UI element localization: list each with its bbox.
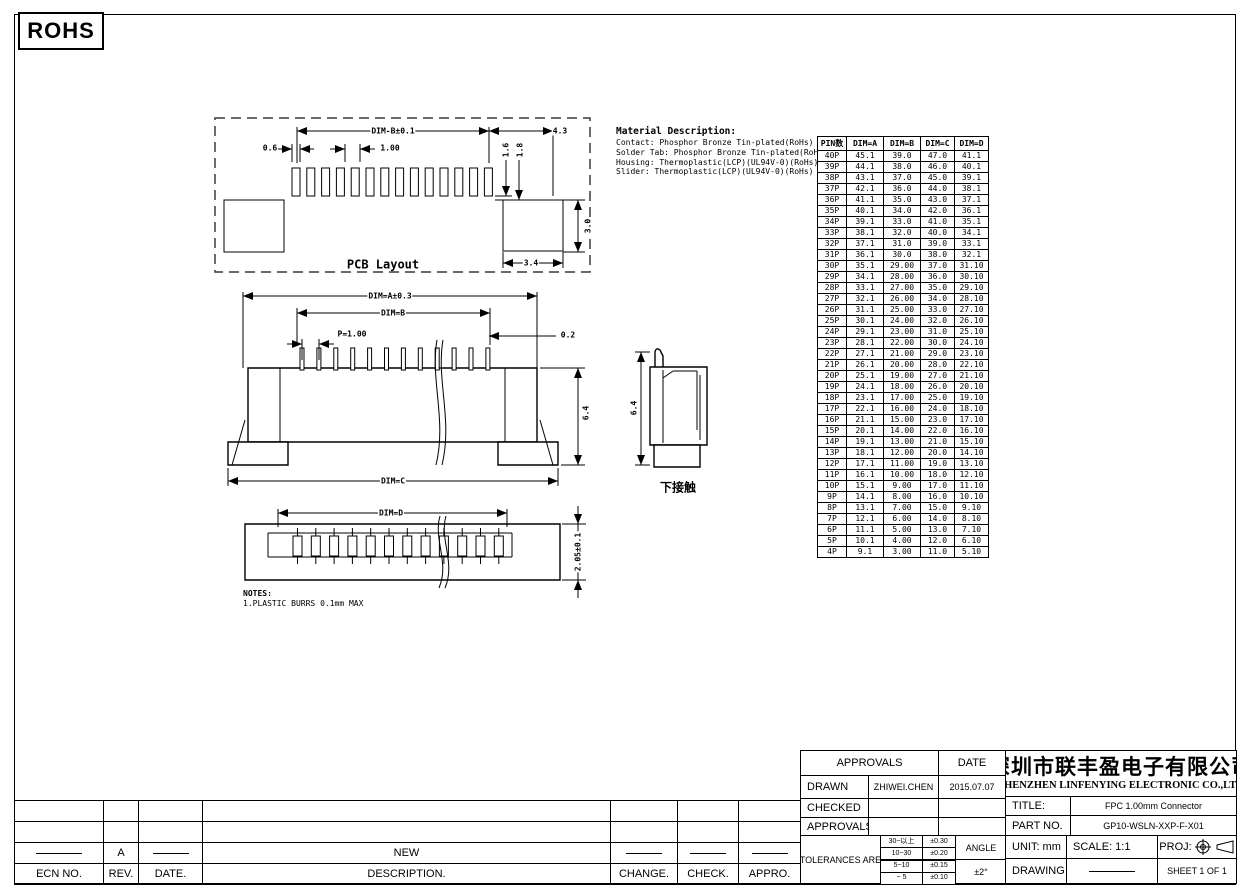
- dim-table-cell: 15P: [818, 426, 847, 437]
- dim-table-header: DIM=D: [955, 137, 989, 151]
- dim-table-cell: 19.1: [847, 437, 884, 448]
- drawing-no-value: [1066, 858, 1158, 884]
- pad: [452, 348, 456, 370]
- dim-table-cell: 34.0: [921, 294, 955, 305]
- dim-table-cell: 40P: [818, 151, 847, 162]
- dim-table-cell: 15.10: [955, 437, 989, 448]
- pad: [458, 536, 467, 556]
- approvals-label: APPROVALS: [800, 817, 869, 836]
- dim-table-cell: 27.0: [921, 371, 955, 382]
- tolerances-label: TOLERANCES ARE: [800, 835, 881, 884]
- dim-table-cell: 25P: [818, 316, 847, 327]
- dim-table-row: 11P16.110.0018.012.10: [818, 470, 989, 481]
- dim-table-cell: 12.10: [955, 470, 989, 481]
- dim-table-cell: 34P: [818, 217, 847, 228]
- dim-table-cell: 19.10: [955, 393, 989, 404]
- dim-table-cell: 27P: [818, 294, 847, 305]
- dim-table-cell: 11.10: [955, 481, 989, 492]
- dim-table-cell: 30.1: [847, 316, 884, 327]
- dim-table-body: 40P45.139.047.041.139P44.138.046.040.138…: [818, 151, 989, 558]
- dim-table-cell: 25.10: [955, 327, 989, 338]
- dim-table-cell: 42.1: [847, 184, 884, 195]
- dim-table-cell: 21.0: [921, 437, 955, 448]
- dim-table-cell: 24P: [818, 327, 847, 338]
- revision-empty-cell: [738, 821, 801, 843]
- dim-table-cell: 30.10: [955, 272, 989, 283]
- dim-table-row: 17P22.116.0024.018.10: [818, 404, 989, 415]
- notes-lines: 1.PLASTIC BURRS 0.1mm MAX: [243, 599, 363, 609]
- dim-table-row: 25P30.124.0032.026.10: [818, 316, 989, 327]
- dim-table-cell: 26.1: [847, 360, 884, 371]
- dim-table-cell: 16.1: [847, 470, 884, 481]
- dim-table-cell: 12.1: [847, 514, 884, 525]
- pcb-dim-16-label: 1.6: [502, 142, 511, 158]
- dim-table-cell: 21.1: [847, 415, 884, 426]
- dim-table-cell: 17.0: [921, 481, 955, 492]
- dim-table-cell: 12.0: [921, 536, 955, 547]
- pad: [494, 536, 503, 556]
- dim-table: PIN数 DIM=A DIM=B DIM=C DIM=D 40P45.139.0…: [817, 136, 989, 558]
- dim-table-cell: 23.1: [847, 393, 884, 404]
- dim-table-cell: 14.0: [921, 514, 955, 525]
- dim-table-cell: 6P: [818, 525, 847, 536]
- dim-table-cell: 8P: [818, 503, 847, 514]
- dim-table-cell: 21.10: [955, 371, 989, 382]
- dim-table-row: 35P40.134.042.036.1: [818, 206, 989, 217]
- dim-table-cell: 22.00: [884, 338, 921, 349]
- drawing-sheet: ROHS: [0, 0, 1249, 889]
- drawing-no-label: DRAWING NO.: [1005, 858, 1067, 884]
- dim-table-row: 26P31.125.0033.027.10: [818, 305, 989, 316]
- dim-table-cell: 32P: [818, 239, 847, 250]
- pcb-dim-30-label: 3.0: [584, 218, 593, 234]
- revision-empty-cell: [202, 821, 611, 843]
- dim-table-cell: 37.0: [884, 173, 921, 184]
- dim-table-cell: 20.00: [884, 360, 921, 371]
- dim-table-cell: 27.00: [884, 283, 921, 294]
- dim-table-cell: 38.0: [921, 250, 955, 261]
- tolerance-cell: 10~30: [880, 847, 923, 860]
- dim-table-cell: 31.0: [884, 239, 921, 250]
- dim-table-cell: 34.1: [847, 272, 884, 283]
- pcb-dim-43-label: 4.3: [552, 127, 568, 136]
- dim-table-cell: 18P: [818, 393, 847, 404]
- dim-table-cell: 18.10: [955, 404, 989, 415]
- text-line: Contact: Phosphor Bronze Tin-plated(RoHs…: [616, 138, 826, 148]
- revision-rev-value: A: [103, 842, 139, 864]
- front-dim-a-label: DIM=A±0.3: [367, 292, 412, 301]
- dim-table-cell: 9P: [818, 492, 847, 503]
- dim-table-cell: 29.1: [847, 327, 884, 338]
- drawn-label: DRAWN: [800, 775, 869, 799]
- dim-table-row: 14P19.113.0021.015.10: [818, 437, 989, 448]
- dim-table-row: 20P25.119.0027.021.10: [818, 371, 989, 382]
- dim-table-cell: 17.1: [847, 459, 884, 470]
- dim-table-cell: 23.10: [955, 349, 989, 360]
- dim-table-cell: 4P: [818, 547, 847, 558]
- projection-symbol-icon: [1195, 839, 1235, 855]
- dim-table-cell: 15.00: [884, 415, 921, 426]
- pad: [293, 536, 302, 556]
- revision-change-dash: [610, 842, 678, 864]
- front-dim-64-label: 6.4: [582, 405, 591, 421]
- dim-table-cell: 34.1: [955, 228, 989, 239]
- company-cell: 深圳市联丰盈电子有限公司 SHENZHEN LINFENYING ELECTRO…: [1005, 750, 1237, 797]
- pcb-right-pad: [503, 200, 563, 251]
- dim-table-cell: 23.00: [884, 327, 921, 338]
- revision-date-dash: [138, 842, 203, 864]
- dim-table-cell: 17.00: [884, 393, 921, 404]
- dim-table-cell: 11.1: [847, 525, 884, 536]
- dim-table-cell: 16.00: [884, 404, 921, 415]
- dim-table-cell: 29P: [818, 272, 847, 283]
- dim-table-cell: 12P: [818, 459, 847, 470]
- dim-table-row: 4P9.13.0011.05.10: [818, 547, 989, 558]
- dim-table-row: 27P32.126.0034.028.10: [818, 294, 989, 305]
- pcb-dim-34-label: 3.4: [523, 259, 539, 268]
- dim-table-cell: 42.0: [921, 206, 955, 217]
- dim-table-cell: 14.1: [847, 492, 884, 503]
- dim-table-cell: 35.0: [921, 283, 955, 294]
- dim-table-cell: 41.1: [955, 151, 989, 162]
- dim-table-row: 30P35.129.0037.031.10: [818, 261, 989, 272]
- pad: [418, 348, 422, 370]
- pcb-dim-100-label: 1.00: [379, 144, 400, 153]
- pad: [311, 536, 320, 556]
- dim-table-cell: 35.0: [884, 195, 921, 206]
- pad: [385, 348, 389, 370]
- dim-table-cell: 20.0: [921, 448, 955, 459]
- dim-table-row: 7P12.16.0014.08.10: [818, 514, 989, 525]
- pad: [403, 536, 412, 556]
- pad: [425, 168, 433, 196]
- dim-table-cell: 30.0: [884, 250, 921, 261]
- pad: [440, 168, 448, 196]
- revision-header-check: CHECK.: [677, 863, 739, 884]
- dim-table-cell: 38.0: [884, 162, 921, 173]
- dim-table-row: 6P11.15.0013.07.10: [818, 525, 989, 536]
- dim-table-cell: 29.10: [955, 283, 989, 294]
- dim-table-cell: 39.0: [884, 151, 921, 162]
- revision-empty-cell: [138, 800, 203, 822]
- approvals-date: [938, 817, 1006, 836]
- dim-table-cell: 39.1: [955, 173, 989, 184]
- pcb-view-title: PCB Layout: [347, 259, 419, 272]
- dim-table-row: 23P28.122.0030.024.10: [818, 338, 989, 349]
- pad: [385, 536, 394, 556]
- dim-table-row: 32P37.131.039.033.1: [818, 239, 989, 250]
- dim-table-cell: 30P: [818, 261, 847, 272]
- revision-empty-cell: [610, 800, 678, 822]
- dim-table-cell: 13.0: [921, 525, 955, 536]
- dim-table-row: 19P24.118.0026.020.10: [818, 382, 989, 393]
- checked-value: [868, 798, 939, 818]
- dim-table-header: DIM=C: [921, 137, 955, 151]
- dim-table-cell: 28P: [818, 283, 847, 294]
- dim-table-cell: 25.00: [884, 305, 921, 316]
- pad: [455, 168, 463, 196]
- dim-table-cell: 33P: [818, 228, 847, 239]
- dim-table-cell: 22.0: [921, 426, 955, 437]
- revision-check-dash: [677, 842, 739, 864]
- dim-table-cell: 25.1: [847, 371, 884, 382]
- dim-table-cell: 9.1: [847, 547, 884, 558]
- dim-table-cell: 26P: [818, 305, 847, 316]
- dim-table-row: 12P17.111.0019.013.10: [818, 459, 989, 470]
- dim-table-row: 37P42.136.044.038.1: [818, 184, 989, 195]
- dim-table-cell: 36.0: [884, 184, 921, 195]
- tolerance-cell: 5~10: [880, 860, 923, 873]
- scale-label: SCALE: 1:1: [1066, 835, 1158, 859]
- dim-table-header: DIM=A: [847, 137, 884, 151]
- dim-table-cell: 39P: [818, 162, 847, 173]
- dim-table-cell: 24.00: [884, 316, 921, 327]
- pad: [381, 168, 389, 196]
- material-title: Material Description:: [616, 126, 826, 138]
- dim-table-cell: 18.1: [847, 448, 884, 459]
- dim-table-cell: 41.1: [847, 195, 884, 206]
- dim-table-row: 39P44.138.046.040.1: [818, 162, 989, 173]
- tolerance-cell: ±0.20: [922, 847, 956, 860]
- dim-table-cell: 15.0: [921, 503, 955, 514]
- dim-table-cell: 13.00: [884, 437, 921, 448]
- dim-table-cell: 37.1: [847, 239, 884, 250]
- pad: [368, 348, 372, 370]
- dim-table-cell: 33.1: [955, 239, 989, 250]
- tolerance-cell: ~ 5: [880, 872, 923, 885]
- pad: [322, 168, 330, 196]
- dim-table-row: 22P27.121.0029.023.10: [818, 349, 989, 360]
- pad: [366, 168, 374, 196]
- dim-table-cell: 10.00: [884, 470, 921, 481]
- revision-empty-cell: [103, 821, 139, 843]
- dim-table-row: 9P14.18.0016.010.10: [818, 492, 989, 503]
- angle-value: ±2°: [955, 859, 1007, 884]
- dim-table-cell: 39.0: [921, 239, 955, 250]
- front-pins: [300, 348, 490, 370]
- dim-table-cell: 35P: [818, 206, 847, 217]
- revision-ecn-dash: [14, 842, 104, 864]
- pad: [401, 348, 405, 370]
- dim-table-cell: 28.1: [847, 338, 884, 349]
- dim-table-cell: 11P: [818, 470, 847, 481]
- dim-table-cell: 16.0: [921, 492, 955, 503]
- dim-table-row: 31P36.130.038.032.1: [818, 250, 989, 261]
- dim-table-cell: 45.0: [921, 173, 955, 184]
- dim-table-cell: 32.1: [955, 250, 989, 261]
- pad: [486, 348, 490, 370]
- revision-header-change: CHANGE.: [610, 863, 678, 884]
- dim-table-cell: 5P: [818, 536, 847, 547]
- dim-table-row: 21P26.120.0028.022.10: [818, 360, 989, 371]
- dim-table-cell: 40.0: [921, 228, 955, 239]
- dim-table-cell: 6.00: [884, 514, 921, 525]
- dim-table-header-row: PIN数 DIM=A DIM=B DIM=C DIM=D: [818, 137, 989, 151]
- dim-table-cell: 25.0: [921, 393, 955, 404]
- dim-table-cell: 24.10: [955, 338, 989, 349]
- dim-table-cell: 47.0: [921, 151, 955, 162]
- dim-table-cell: 13P: [818, 448, 847, 459]
- dim-table-cell: 10P: [818, 481, 847, 492]
- dim-table-cell: 11.0: [921, 547, 955, 558]
- dim-table-cell: 44.0: [921, 184, 955, 195]
- pad: [484, 168, 492, 196]
- dim-table-cell: 20P: [818, 371, 847, 382]
- pad: [396, 168, 404, 196]
- pcb-layout-view: [215, 118, 590, 272]
- pcb-left-pad: [224, 200, 284, 252]
- dim-table-cell: 26.0: [921, 382, 955, 393]
- dim-table-cell: 22.10: [955, 360, 989, 371]
- dim-table-cell: 7.00: [884, 503, 921, 514]
- material-lines: Contact: Phosphor Bronze Tin-plated(RoHs…: [616, 138, 826, 177]
- tolerance-cell: 30~以上: [880, 835, 923, 848]
- dim-table-cell: 14.00: [884, 426, 921, 437]
- approvals-header: APPROVALS: [800, 750, 939, 776]
- dim-table-cell: 33.1: [847, 283, 884, 294]
- dim-table-row: 8P13.17.0015.09.10: [818, 503, 989, 514]
- dim-table-cell: 37.1: [955, 195, 989, 206]
- dim-table-cell: 37P: [818, 184, 847, 195]
- dim-table-cell: 14.10: [955, 448, 989, 459]
- dim-table-row: 29P34.128.0036.030.10: [818, 272, 989, 283]
- dim-table-row: 34P39.133.041.035.1: [818, 217, 989, 228]
- revision-empty-cell: [677, 800, 739, 822]
- dim-table-cell: 8.10: [955, 514, 989, 525]
- dim-table-cell: 35.1: [847, 261, 884, 272]
- front-view: [228, 292, 585, 486]
- dim-table-cell: 44.1: [847, 162, 884, 173]
- pad: [470, 168, 478, 196]
- dim-table-cell: 31.10: [955, 261, 989, 272]
- company-name-en: SHENZHEN LINFENYING ELECTRONIC CO.,LTD: [1005, 779, 1237, 792]
- title-value: FPC 1.00mm Connector: [1070, 796, 1237, 816]
- dim-table-cell: 36.0: [921, 272, 955, 283]
- pad: [421, 536, 430, 556]
- unit-label: UNIT: mm: [1005, 835, 1067, 859]
- dim-table-cell: 31P: [818, 250, 847, 261]
- revision-header-appro: APPRO.: [738, 863, 801, 884]
- dim-table-row: 18P23.117.0025.019.10: [818, 393, 989, 404]
- pcb-dim-b-label: DIM-B±0.1: [370, 127, 415, 136]
- dim-table-cell: 39.1: [847, 217, 884, 228]
- tolerance-cell: ±0.10: [922, 872, 956, 885]
- dim-table-cell: 16P: [818, 415, 847, 426]
- notes-block: NOTES: 1.PLASTIC BURRS 0.1mm MAX: [243, 589, 363, 609]
- dim-table-cell: 5.00: [884, 525, 921, 536]
- dim-table-row: 13P18.112.0020.014.10: [818, 448, 989, 459]
- pcb-dim-06-label: 0.6: [262, 144, 278, 153]
- dim-table-cell: 16.10: [955, 426, 989, 437]
- dim-table-cell: 20.1: [847, 426, 884, 437]
- part-no-value: GP10-WSLN-XXP-F-X01: [1070, 815, 1237, 836]
- text-line: Solder Tab: Phosphor Bronze Tin-plated(R…: [616, 148, 826, 158]
- pad: [469, 348, 473, 370]
- drawn-date: 2015.07.07: [938, 775, 1006, 799]
- dim-table-header: DIM=B: [884, 137, 921, 151]
- dim-table-cell: 40.1: [847, 206, 884, 217]
- dim-table-cell: 4.00: [884, 536, 921, 547]
- dim-table-cell: 26.10: [955, 316, 989, 327]
- pad: [330, 536, 339, 556]
- material-description: Material Description: Contact: Phosphor …: [616, 126, 826, 177]
- dim-table-cell: 10.1: [847, 536, 884, 547]
- dim-table-cell: 45.1: [847, 151, 884, 162]
- dim-table-cell: 33.0: [921, 305, 955, 316]
- dim-table-cell: 19.0: [921, 459, 955, 470]
- dim-table-cell: 29.00: [884, 261, 921, 272]
- angle-label: ANGLE: [955, 835, 1007, 860]
- dim-table-cell: 7.10: [955, 525, 989, 536]
- revision-empty-cell: [14, 800, 104, 822]
- dim-table-cell: 23P: [818, 338, 847, 349]
- dim-table-cell: 19.00: [884, 371, 921, 382]
- revision-header-ecn: ECN NO.: [14, 863, 104, 884]
- pad: [307, 168, 315, 196]
- pad: [334, 348, 338, 370]
- dim-table-cell: 37.0: [921, 261, 955, 272]
- dim-table-cell: 18.00: [884, 382, 921, 393]
- dim-table-cell: 18.0: [921, 470, 955, 481]
- proj-cell: PROJ:: [1157, 835, 1237, 859]
- dim-table-cell: 11.00: [884, 459, 921, 470]
- dim-table-cell: 38.1: [847, 228, 884, 239]
- dim-table-cell: 27.10: [955, 305, 989, 316]
- dim-table-cell: 19P: [818, 382, 847, 393]
- dim-table-row: 38P43.137.045.039.1: [818, 173, 989, 184]
- dim-table-cell: 35.1: [955, 217, 989, 228]
- dim-table-cell: 38.1: [955, 184, 989, 195]
- company-name-cn: 深圳市联丰盈电子有限公司: [1005, 755, 1237, 779]
- revision-description-value: NEW: [202, 842, 611, 864]
- revision-empty-cell: [677, 821, 739, 843]
- date-header: DATE: [938, 750, 1006, 776]
- dim-table-cell: 13.10: [955, 459, 989, 470]
- front-dim-b-label: DIM=B: [380, 309, 406, 318]
- dim-table-cell: 41.0: [921, 217, 955, 228]
- dim-table-cell: 32.1: [847, 294, 884, 305]
- front-dim-c-label: DIM=C: [380, 477, 406, 486]
- pcb-dim-18-label: 1.8: [516, 142, 525, 158]
- dim-table-cell: 20.10: [955, 382, 989, 393]
- dim-table-cell: 24.0: [921, 404, 955, 415]
- dim-table-cell: 22.1: [847, 404, 884, 415]
- dim-table-row: 33P38.132.040.034.1: [818, 228, 989, 239]
- dim-table-row: 24P29.123.0031.025.10: [818, 327, 989, 338]
- dim-table-cell: 7P: [818, 514, 847, 525]
- revision-header-date: DATE.: [138, 863, 203, 884]
- dim-table-cell: 40.1: [955, 162, 989, 173]
- pad: [348, 536, 357, 556]
- dim-table-row: 28P33.127.0035.029.10: [818, 283, 989, 294]
- pad: [336, 168, 344, 196]
- pcb-pads: [292, 168, 492, 196]
- dim-table-cell: 28.10: [955, 294, 989, 305]
- revision-empty-cell: [202, 800, 611, 822]
- dim-table-cell: 22P: [818, 349, 847, 360]
- revision-header-rev: REV.: [103, 863, 139, 884]
- dim-table-row: 15P20.114.0022.016.10: [818, 426, 989, 437]
- tolerance-cell: ±0.15: [922, 860, 956, 873]
- bottom-dim-d-label: DIM=D: [378, 509, 404, 518]
- dim-table-row: 10P15.19.0017.011.10: [818, 481, 989, 492]
- dim-table-cell: 6.10: [955, 536, 989, 547]
- approvals-value: [868, 817, 939, 836]
- dim-table-cell: 38P: [818, 173, 847, 184]
- dim-table-cell: 21P: [818, 360, 847, 371]
- dim-table-cell: 43.1: [847, 173, 884, 184]
- revision-empty-cell: [738, 800, 801, 822]
